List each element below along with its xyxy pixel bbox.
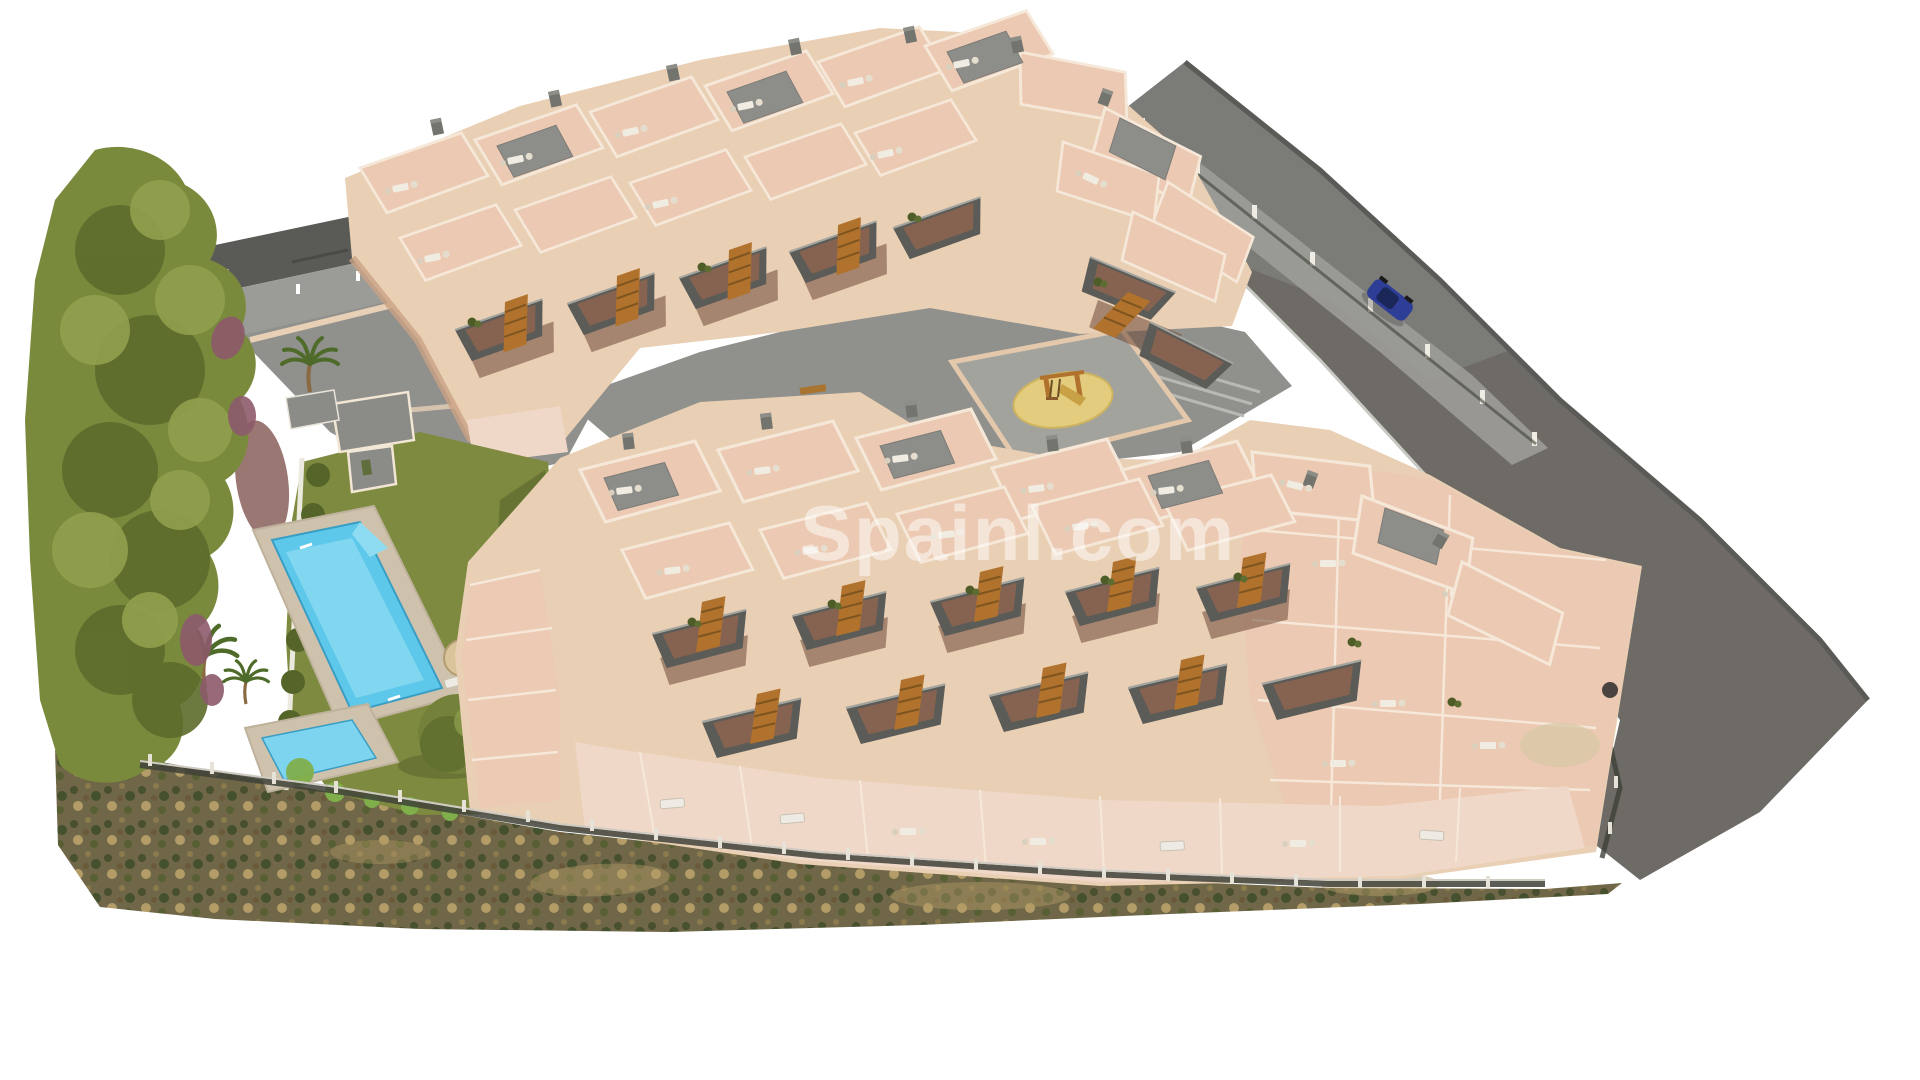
outdoor-rug <box>1520 723 1600 767</box>
watermark: Spainl.com <box>800 489 1236 577</box>
fire-pit <box>1602 682 1618 698</box>
property-aerial-render: Spainl.com <box>0 0 1920 1080</box>
